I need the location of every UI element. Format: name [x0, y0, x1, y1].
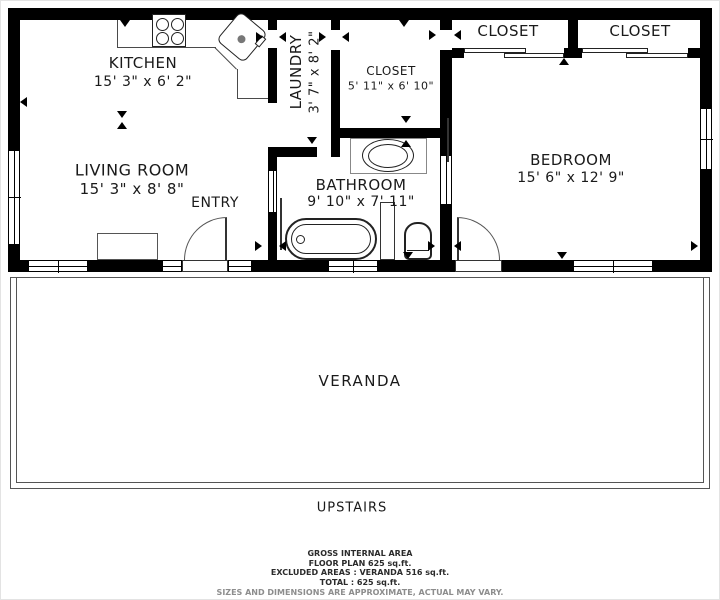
window-left	[8, 150, 20, 245]
opening-living-bathroom	[268, 170, 277, 213]
marker-arrow	[117, 111, 127, 118]
footer-floor-plan-area: FLOOR PLAN 625 sq.ft.	[217, 559, 504, 569]
bedroom-door-threshold	[455, 260, 502, 272]
opening-bathroom-bedroom	[440, 155, 452, 205]
hearth	[97, 233, 158, 260]
marker-arrow	[399, 20, 409, 27]
wall-segment	[252, 260, 328, 272]
wall-segment	[268, 48, 277, 103]
window-mullion	[613, 261, 614, 273]
label-upstairs: UPSTAIRS	[317, 501, 388, 516]
marker-arrow	[403, 252, 413, 259]
room-dims-bathroom: 9' 10" x 7' 11"	[307, 194, 415, 210]
footer-total-area: TOTAL : 625 sq.ft.	[217, 578, 504, 588]
sliding-door-panel	[504, 53, 564, 58]
room-label-bathroom: BATHROOM	[316, 176, 407, 194]
room-label-veranda: VERANDA	[318, 372, 401, 390]
window-sidelight-1	[162, 260, 182, 272]
marker-arrow	[279, 241, 286, 251]
window-bedroom	[573, 260, 653, 272]
window-mullion	[58, 261, 59, 273]
wall-segment	[564, 48, 582, 58]
marker-arrow	[559, 58, 569, 65]
wall-segment	[440, 205, 452, 272]
marker-arrow	[691, 241, 698, 251]
room-label-laundry: LAUNDRY	[287, 35, 305, 110]
room-label-living-room: LIVING ROOM	[75, 161, 189, 180]
room-label-kitchen: KITCHEN	[109, 54, 178, 72]
stove-burner	[156, 18, 169, 31]
window-mullion	[29, 266, 89, 267]
room-dims-bedroom: 15' 6" x 12' 9"	[517, 170, 625, 186]
wall-segment	[452, 48, 464, 58]
footer-gross-internal-area: GROSS INTERNAL AREA	[217, 549, 504, 559]
wall-segment	[268, 213, 277, 260]
wall-segment	[331, 50, 340, 157]
footer-area-summary: GROSS INTERNAL AREA FLOOR PLAN 625 sq.ft…	[217, 549, 504, 598]
marker-arrow	[255, 241, 262, 251]
window-mullion	[163, 266, 183, 267]
stove-icon	[152, 14, 186, 47]
marker-arrow	[120, 20, 130, 27]
room-dims-living-room: 15' 3" x 8' 8"	[80, 180, 185, 198]
window-mullion	[353, 261, 354, 273]
marker-arrow	[428, 241, 435, 251]
window-mullion	[273, 171, 274, 214]
wall-right-lower	[700, 170, 712, 272]
window-mullion	[701, 139, 713, 140]
wall-segment	[440, 50, 452, 155]
marker-arrow	[454, 30, 461, 40]
window-mullion	[9, 197, 21, 198]
wall-segment	[502, 260, 573, 272]
marker-arrow	[279, 32, 286, 42]
window-mullion	[229, 266, 253, 267]
stove-burner	[156, 32, 169, 45]
window-bathroom	[328, 260, 378, 272]
shower-partition	[380, 202, 395, 260]
wall-right-upper	[700, 8, 712, 108]
bedroom-closet-door-leaf	[447, 118, 449, 162]
marker-arrow	[429, 30, 436, 40]
marker-arrow	[20, 97, 27, 107]
bedroom-door-leaf	[457, 218, 459, 260]
bathroom-sink-inner	[368, 144, 408, 168]
marker-arrow	[307, 137, 317, 144]
counter-line	[237, 98, 268, 99]
room-label-closet-left: CLOSET	[477, 22, 538, 40]
counter-line	[117, 20, 118, 47]
window-mullion	[14, 151, 15, 246]
wall-segment	[8, 260, 28, 272]
stove-burner	[171, 32, 184, 45]
wall-segment	[440, 20, 452, 30]
wall-segment	[688, 48, 700, 58]
footer-disclaimer: SIZES AND DIMENSIONS ARE APPROXIMATE, AC…	[217, 588, 504, 598]
entry-door-leaf	[225, 218, 227, 260]
window-mullion	[446, 156, 447, 206]
marker-arrow	[117, 122, 127, 129]
window-mullion	[706, 109, 707, 171]
marker-arrow	[401, 116, 411, 123]
marker-arrow	[401, 140, 411, 147]
wall-segment	[268, 20, 277, 30]
footer-excluded-areas: EXCLUDED AREAS : VERANDA 516 sq.ft.	[217, 568, 504, 578]
wall-top	[8, 8, 712, 20]
wall-left-upper	[8, 8, 20, 150]
window-mullion	[574, 266, 654, 267]
room-dims-kitchen: 15' 3" x 6' 2"	[94, 74, 192, 90]
wall-segment	[653, 260, 712, 272]
wall-segment	[340, 128, 452, 138]
marker-arrow	[454, 241, 461, 251]
entry-door-threshold	[182, 260, 228, 272]
room-dims-laundry: 3' 7" x 8' 2"	[308, 31, 323, 114]
window-mullion	[329, 266, 379, 267]
floor-plan: KITCHEN 15' 3" x 6' 2" LAUNDRY 3' 7" x 8…	[0, 0, 720, 600]
wall-segment	[88, 260, 162, 272]
wall-segment	[268, 150, 277, 170]
room-dims-hall-closet: 5' 11" x 6' 10"	[348, 80, 434, 93]
toilet-seat-line	[407, 250, 429, 251]
sink-drain	[236, 34, 247, 45]
stove-burner	[171, 18, 184, 31]
room-label-entry: ENTRY	[191, 195, 239, 211]
window-sidelight-2	[228, 260, 252, 272]
room-label-hall-closet: CLOSET	[366, 64, 416, 78]
room-label-bedroom: BEDROOM	[530, 151, 612, 169]
marker-arrow	[256, 32, 263, 42]
marker-arrow	[557, 252, 567, 259]
room-label-closet-right: CLOSET	[609, 22, 670, 40]
marker-arrow	[342, 32, 349, 42]
counter-line	[117, 47, 216, 48]
wall-segment	[331, 20, 340, 30]
window-right	[700, 108, 712, 170]
bathtub-drain	[296, 235, 305, 244]
counter-line	[237, 69, 238, 98]
sliding-door-panel	[626, 53, 688, 58]
window-living-1	[28, 260, 88, 272]
